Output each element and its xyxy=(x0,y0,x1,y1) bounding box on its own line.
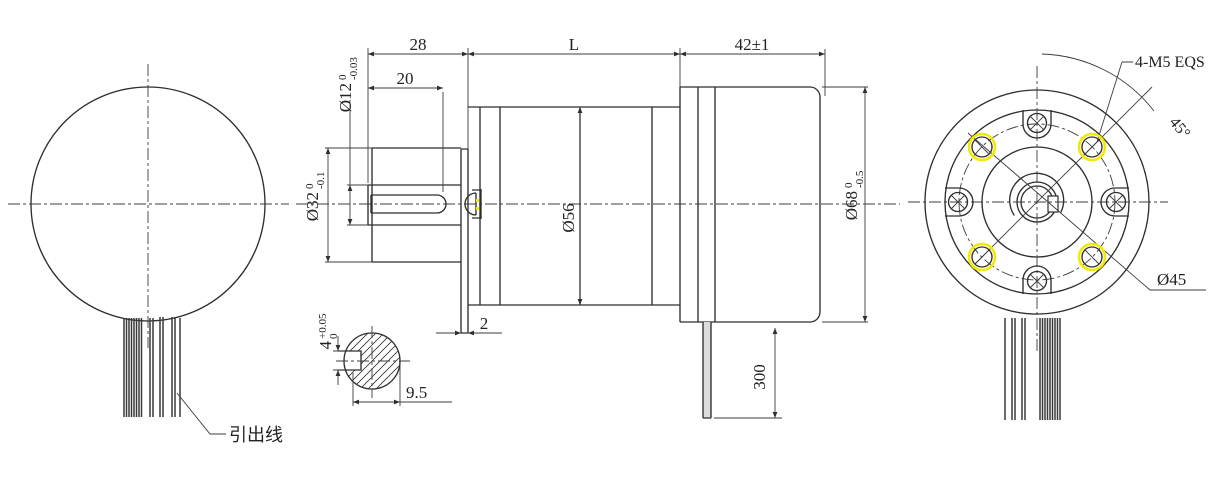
dim-wire-length: 300 xyxy=(750,328,775,418)
dim-motor-length: 42±1 xyxy=(680,35,825,54)
mounting-flange xyxy=(461,149,468,333)
dim-keyway-length: 20 xyxy=(368,69,443,88)
output-shaft xyxy=(325,148,461,262)
dim-gearbox-dia-label: Ø56 xyxy=(559,203,578,232)
dim-key-width: 4 +0.05 0 xyxy=(316,313,340,385)
dim-flange-thickness-label: 2 xyxy=(480,314,489,333)
dim-shaft-dia-tol-dn: -0.03 xyxy=(348,57,360,80)
flange-screw-highlight xyxy=(476,199,479,202)
dim-motor-length-label: 42±1 xyxy=(735,35,770,54)
bolt-angle-label: 45° xyxy=(1166,114,1193,142)
keyway-slot-mask xyxy=(338,351,361,370)
dim-shaft-length: 28 xyxy=(368,35,468,54)
bolt-circle-dia-label: Ø45 xyxy=(1157,270,1186,289)
bolt-callout-leader xyxy=(1097,62,1133,142)
flange-screw-highlight xyxy=(476,207,479,210)
bolt-callout-label: 4-M5 EQS xyxy=(1135,54,1205,71)
front-view: 4-M5 EQS 45° Ø45 xyxy=(908,54,1206,420)
bolt-circle-dia-leader xyxy=(968,133,1206,290)
dim-motor-dia-label: Ø68 xyxy=(842,191,861,220)
extension-lines xyxy=(368,48,868,418)
dim-shaft-dia-label: Ø12 xyxy=(336,83,355,112)
rear-view: 引出线 xyxy=(8,64,289,445)
dim-boss-dia-tol-dn: -0.1 xyxy=(315,172,327,189)
dim-motor-dia: Ø68 0 -0.5 xyxy=(842,87,866,322)
dim-wire-length-label: 300 xyxy=(750,364,769,390)
drawing-svg: 引出线 xyxy=(0,0,1215,496)
dim-key-width-label: 4 xyxy=(316,341,335,350)
dim-motor-dia-tol-dn: -0.5 xyxy=(854,170,866,188)
front-view-lead-wires xyxy=(1005,318,1060,420)
dim-shaft-dia: Ø12 0 -0.03 xyxy=(336,57,360,225)
dim-flange-thickness: 2 xyxy=(436,314,502,333)
dim-key-flat: 9.5 xyxy=(353,383,452,402)
dim-key-flat-label: 9.5 xyxy=(406,383,427,402)
motor-body xyxy=(680,87,820,322)
keyway-section-detail: 4 +0.05 0 9.5 xyxy=(316,217,452,493)
dim-gearbox-length: L xyxy=(468,35,680,54)
dim-boss-dia-label: Ø32 xyxy=(303,192,322,221)
dim-keyway-length-label: 20 xyxy=(397,69,414,88)
lead-wire-label: 引出线 xyxy=(229,425,283,445)
dim-boss-dia: Ø32 0 -0.1 xyxy=(303,148,328,262)
lead-wire-leader-line xyxy=(177,393,226,434)
dim-shaft-length-label: 28 xyxy=(410,35,427,54)
dim-gearbox-length-label: L xyxy=(569,35,579,54)
rear-view-lead-wires xyxy=(124,317,180,417)
dim-gearbox-dia: Ø56 xyxy=(559,107,580,305)
dim-key-width-tol-dn: 0 xyxy=(328,333,340,339)
engineering-drawing: 引出线 xyxy=(0,0,1215,496)
motor-lead-wire xyxy=(703,322,711,418)
